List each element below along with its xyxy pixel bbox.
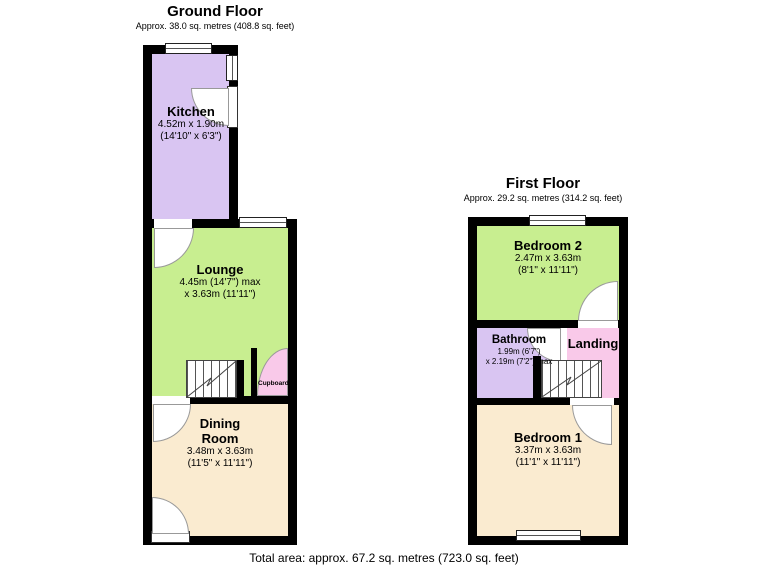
room-name: Bathroom: [475, 334, 563, 347]
wall: [237, 360, 244, 398]
room-name: Kitchen: [155, 104, 227, 119]
room-dim: x 3.63m (11'11"): [150, 289, 290, 301]
room-dim: (14'10" x 6'3"): [155, 131, 227, 143]
landing-label: Landing: [563, 336, 623, 351]
first-floor-subtitle: Approx. 29.2 sq. metres (314.2 sq. feet): [433, 193, 653, 204]
bathroom-label: Bathroom 1.99m (6'7") x 2.19m (7'2") max: [475, 334, 563, 367]
room-name: Dining Room: [185, 416, 255, 446]
doorway-gap: [578, 320, 618, 328]
doorway-gap: [152, 396, 190, 404]
stairs-direction-line: [186, 360, 237, 398]
room-dim: 3.37m x 3.63m: [477, 445, 619, 457]
ground-floor-subtitle: Approx. 38.0 sq. metres (408.8 sq. feet): [105, 21, 325, 32]
room-dim: 3.48m x 3.63m: [185, 446, 255, 458]
room-dim: 2.47m x 3.63m: [477, 253, 619, 265]
dining-room-label: Dining Room 3.48m x 3.63m (11'5" x 11'11…: [185, 416, 255, 470]
wall: [251, 348, 257, 396]
room-dim: 4.52m x 1.90m: [155, 119, 227, 131]
room-name: Landing: [563, 336, 623, 351]
window: [226, 55, 238, 81]
room-dim: (8'1" x 11'11"): [477, 265, 619, 277]
first-floor-title: First Floor: [433, 175, 653, 192]
window: [165, 43, 212, 54]
room-dim: x 2.19m (7'2") max: [475, 357, 563, 367]
window: [529, 215, 586, 226]
room-dim: (11'5" x 11'11"): [185, 458, 255, 470]
lounge-label: Lounge 4.45m (14'7") max x 3.63m (11'11"…: [150, 262, 290, 301]
kitchen-label: Kitchen 4.52m x 1.90m (14'10" x 6'3"): [155, 104, 227, 143]
room-dim: 1.99m (6'7"): [475, 347, 563, 357]
room-name: Bedroom 1: [477, 430, 619, 445]
doorway-gap: [154, 219, 192, 228]
room-dim: (11'1" x 11'11"): [477, 457, 619, 469]
bedroom-2-label: Bedroom 2 2.47m x 3.63m (8'1" x 11'11"): [477, 238, 619, 277]
cupboard-label: Cupboard: [258, 380, 287, 387]
window: [516, 530, 581, 541]
room-dim: 4.45m (14'7") max: [150, 277, 290, 289]
total-area-text: Total area: approx. 67.2 sq. metres (723…: [0, 551, 768, 565]
floorplan-canvas: Ground Floor Approx. 38.0 sq. metres (40…: [0, 0, 768, 576]
room-name: Bedroom 2: [477, 238, 619, 253]
ground-floor-title: Ground Floor: [105, 3, 325, 20]
doorway-gap: [570, 398, 614, 405]
bedroom-1-label: Bedroom 1 3.37m x 3.63m (11'1" x 11'11"): [477, 430, 619, 469]
room-name: Lounge: [150, 262, 290, 277]
window: [239, 217, 287, 228]
